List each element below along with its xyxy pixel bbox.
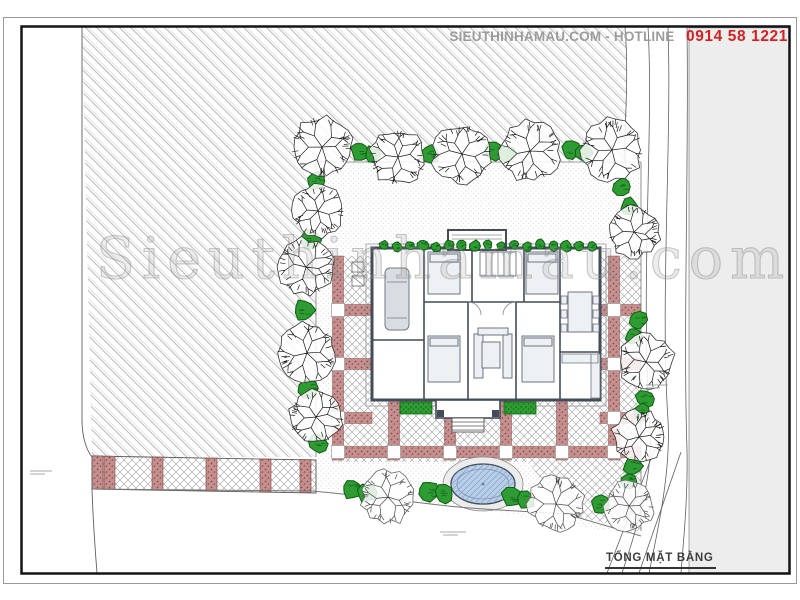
site-plan-canvas xyxy=(0,0,800,600)
site-plan-sheet: SIEUTHINHAMAU.COM - HOTLINE 0914 58 1221… xyxy=(0,0,800,600)
drawing-title: TỔNG MẶT BẰNG xyxy=(605,552,716,569)
title-block-panel xyxy=(689,28,789,573)
shrub-icon xyxy=(417,241,429,251)
hotline-phone-number: 0914 58 1221 xyxy=(686,28,788,45)
shrub-icon xyxy=(405,242,414,250)
header-banner: SIEUTHINHAMAU.COM - HOTLINE 0914 58 1221 xyxy=(449,28,788,46)
shrub-icon xyxy=(549,241,558,252)
shrub-icon xyxy=(457,240,466,250)
fence-band xyxy=(92,456,316,493)
shrub-icon xyxy=(588,242,597,252)
brand-hotline-label: SIEUTHINHAMAU.COM - HOTLINE xyxy=(449,29,674,44)
